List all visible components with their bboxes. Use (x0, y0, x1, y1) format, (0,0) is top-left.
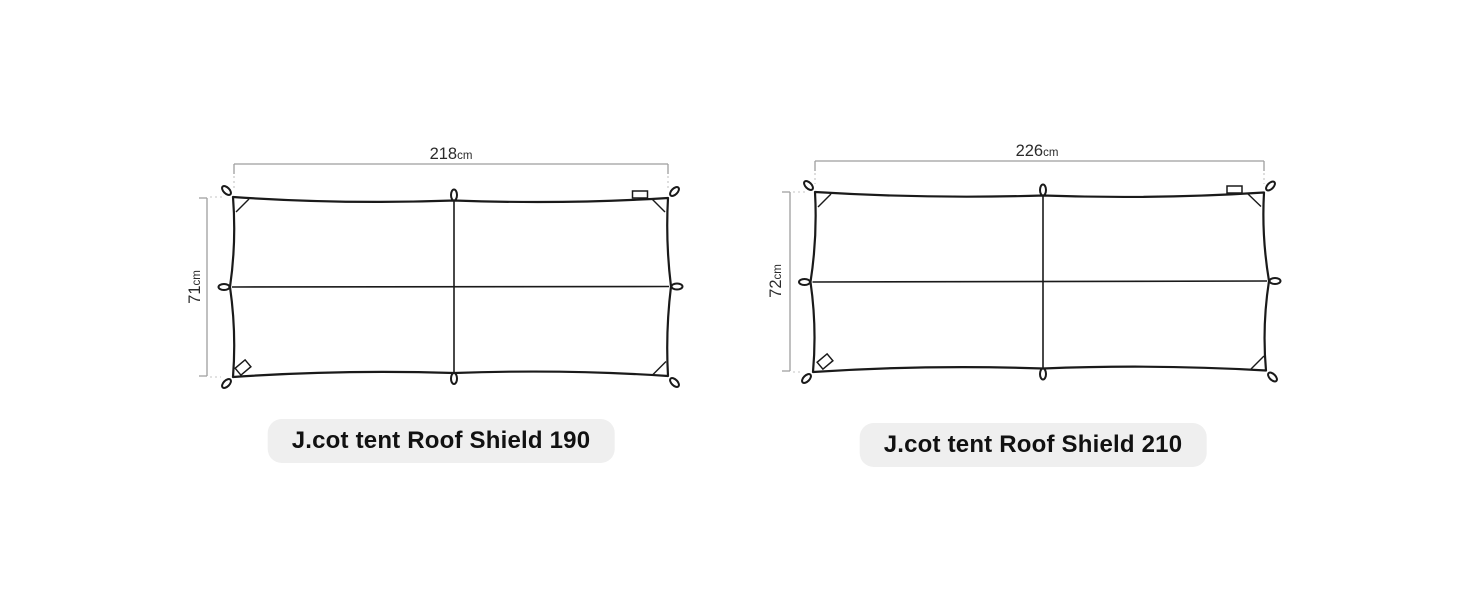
width-value: 218 (430, 145, 458, 163)
edge-loop-icon (219, 284, 230, 290)
roof-shield-190-diagram: 218cm 71cm (150, 120, 710, 400)
depth-value: 71 (186, 285, 204, 303)
depth-value: 72 (767, 279, 785, 297)
center-horizontal-seam (232, 287, 669, 288)
corner-loop-icon (802, 179, 814, 191)
width-dimension-line (815, 161, 1264, 171)
width-value: 226 (1016, 142, 1044, 160)
roof-shield-210-drawing: 226cm 72cm (735, 115, 1295, 395)
width-unit: cm (1043, 147, 1058, 159)
width-dimension-label: 226cm (1016, 142, 1059, 160)
depth-unit: cm (191, 270, 203, 285)
width-unit: cm (457, 150, 472, 162)
depth-dimension-label: 71cm (186, 270, 204, 304)
edge-loop-icon (1040, 369, 1046, 380)
brand-tag-icon (1227, 186, 1242, 193)
width-extension-dotted-lines (234, 176, 668, 189)
corner-loop-icon (668, 376, 680, 388)
product-title-badge-190: J.cot tent Roof Shield 190 (268, 419, 615, 463)
corner-loop-icon (220, 377, 232, 389)
page-canvas: 218cm 71cm (0, 0, 1460, 597)
corner-loop-icon (800, 372, 812, 384)
brand-tag-icon (633, 191, 648, 198)
center-horizontal-seam (813, 281, 1268, 282)
corner-loop-icon (220, 184, 232, 196)
edge-loop-icon (451, 373, 457, 384)
width-dimension-label: 218cm (430, 145, 473, 163)
width-extension-dotted-lines (815, 173, 1264, 184)
width-dimension-line (234, 164, 668, 174)
corner-loop-icon (1266, 371, 1278, 383)
roof-shield-190-drawing: 218cm 71cm (150, 120, 710, 400)
depth-unit: cm (772, 264, 784, 279)
depth-dimension-label: 72cm (767, 264, 785, 298)
corner-loop-icon (668, 185, 680, 197)
edge-loop-icon (451, 190, 457, 201)
roof-shield-210-diagram: 226cm 72cm (735, 115, 1295, 395)
edge-loop-icon (1270, 278, 1281, 284)
edge-loop-icon (672, 284, 683, 290)
corner-loop-icon (1264, 180, 1276, 192)
edge-loop-icon (799, 279, 810, 285)
product-title-badge-210: J.cot tent Roof Shield 210 (860, 423, 1207, 467)
edge-loop-icon (1040, 185, 1046, 196)
